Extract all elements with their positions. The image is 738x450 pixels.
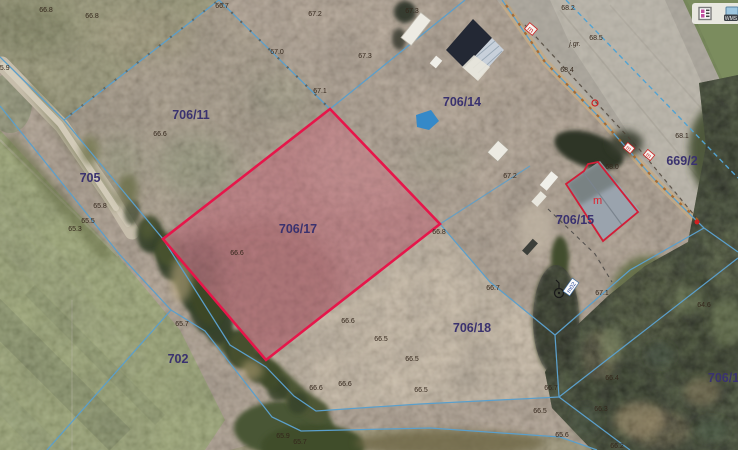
svg-text:68.2: 68.2 <box>561 5 575 12</box>
svg-text:66.6: 66.6 <box>153 131 167 138</box>
svg-text:66.2: 66.2 <box>610 443 624 450</box>
svg-text:67.1: 67.1 <box>313 88 327 95</box>
svg-text:65.9: 65.9 <box>0 65 10 72</box>
svg-text:67.1: 67.1 <box>595 290 609 297</box>
svg-text:706/15: 706/15 <box>556 213 594 227</box>
svg-text:66.7: 66.7 <box>486 285 500 292</box>
svg-text:705: 705 <box>80 171 101 185</box>
svg-text:67.0: 67.0 <box>270 49 284 56</box>
svg-text:706/17: 706/17 <box>279 222 317 236</box>
svg-text:706/14: 706/14 <box>443 95 481 109</box>
svg-text:65.7: 65.7 <box>175 321 189 328</box>
svg-text:65.7: 65.7 <box>293 439 307 446</box>
svg-text:65.6: 65.6 <box>555 432 569 439</box>
svg-text:66.4: 66.4 <box>605 375 619 382</box>
svg-text:67.3: 67.3 <box>358 53 372 60</box>
svg-text:706/18: 706/18 <box>453 321 491 335</box>
svg-text:66.8: 66.8 <box>432 229 446 236</box>
svg-text:66.6: 66.6 <box>230 250 244 257</box>
svg-text:65.5: 65.5 <box>81 218 95 225</box>
svg-text:65.9: 65.9 <box>276 433 290 440</box>
svg-text:66.5: 66.5 <box>374 336 388 343</box>
svg-text:67.2: 67.2 <box>308 11 322 18</box>
svg-text:66.7: 66.7 <box>544 385 558 392</box>
svg-text:64.6: 64.6 <box>697 302 711 309</box>
svg-text:65.8: 65.8 <box>93 203 107 210</box>
svg-text:66.6: 66.6 <box>338 381 352 388</box>
svg-text:66.8: 66.8 <box>85 13 99 20</box>
svg-text:68.5: 68.5 <box>589 35 603 42</box>
svg-text:65.3: 65.3 <box>68 226 82 233</box>
svg-text:66.6: 66.6 <box>341 318 355 325</box>
svg-text:66.8: 66.8 <box>39 7 53 14</box>
svg-text:66.7: 66.7 <box>215 3 229 10</box>
svg-text:66.3: 66.3 <box>594 406 608 413</box>
svg-text:66.5: 66.5 <box>405 356 419 363</box>
svg-text:706/16: 706/16 <box>708 371 738 385</box>
svg-text:68.1: 68.1 <box>675 133 689 140</box>
svg-text:706/11: 706/11 <box>172 108 210 122</box>
svg-text:66.5: 66.5 <box>533 408 547 415</box>
svg-text:67.3: 67.3 <box>405 8 419 15</box>
svg-text:702: 702 <box>168 352 189 366</box>
svg-text:67.2: 67.2 <box>503 173 517 180</box>
svg-text:j.gr.: j.gr. <box>568 41 580 48</box>
svg-text:66.5: 66.5 <box>414 387 428 394</box>
svg-text:WMS: WMS <box>725 16 738 22</box>
svg-text:68.4: 68.4 <box>560 67 574 74</box>
svg-text:68.0: 68.0 <box>605 164 619 171</box>
svg-text:m: m <box>593 195 602 207</box>
svg-text:669/2: 669/2 <box>666 154 697 168</box>
svg-text:66.6: 66.6 <box>309 385 323 392</box>
